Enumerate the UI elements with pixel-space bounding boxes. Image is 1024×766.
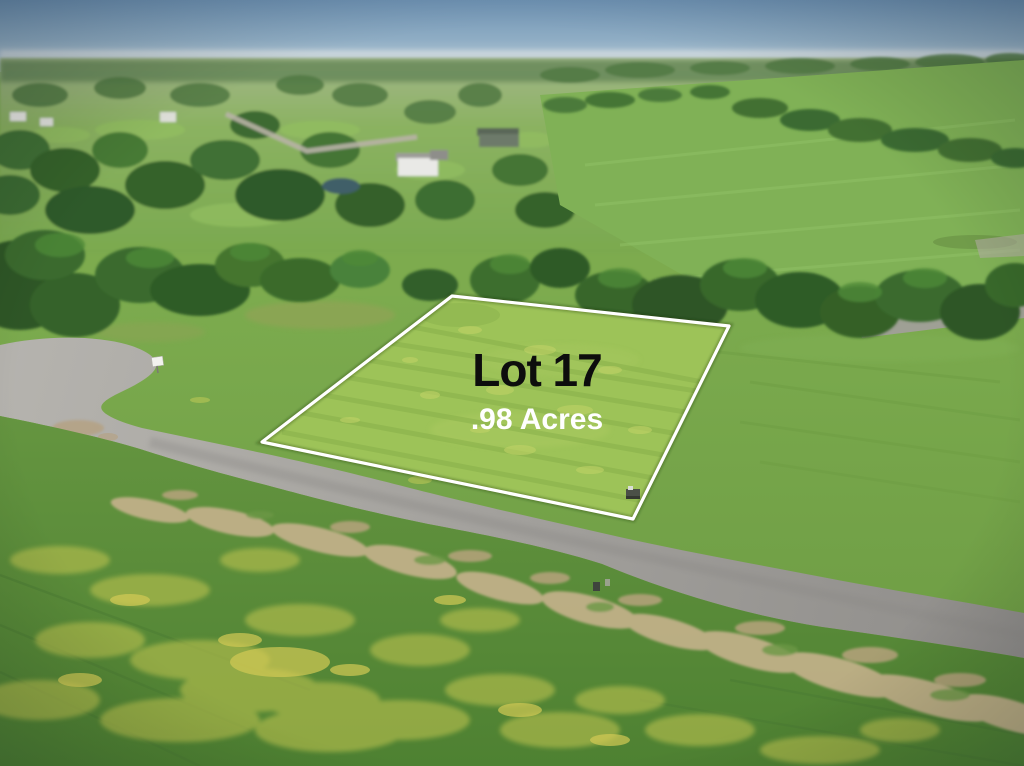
vignette-overlay [0,0,1024,766]
photo-illustration [0,0,1024,766]
aerial-lot-photo: Lot 17 .98 Acres [0,0,1024,766]
